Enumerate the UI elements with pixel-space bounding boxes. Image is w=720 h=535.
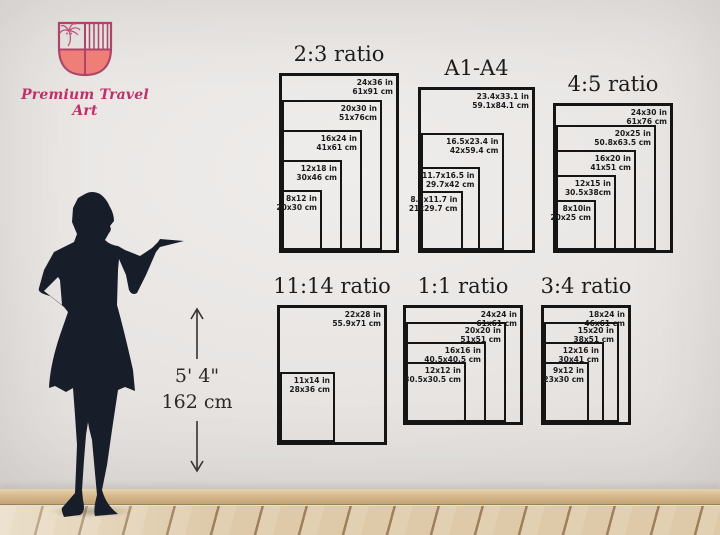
size-label: 12x18 in30x46 cm <box>296 164 337 182</box>
chart-title: 3:4 ratio <box>541 274 632 298</box>
size-chart-11-14: 11:14 ratio22x28 in55.9x71 cm11x14 in28x… <box>277 305 387 445</box>
size-chart-2-3: 2:3 ratio24x36 in61x91 cm20x30 in51x76cm… <box>279 73 399 253</box>
chart-title: 4:5 ratio <box>568 72 659 96</box>
size-in: 16x16 in <box>424 346 481 355</box>
size-in: 11x14 in <box>289 376 330 385</box>
size-in: 12x15 in <box>565 179 611 188</box>
size-cm: 42x59.4 cm <box>446 146 498 155</box>
size-in: 12x18 in <box>296 164 337 173</box>
size-cm: 30.5x30.5 cm <box>404 375 461 384</box>
size-label: 24x30 in61x76 cm <box>626 108 667 126</box>
size-in: 9x12 in <box>543 366 584 375</box>
size-chart-4-5: 4:5 ratio24x30 in61x76 cm20x25 in50.8x63… <box>553 103 673 253</box>
size-in: 22x28 in <box>332 310 381 319</box>
size-guide-poster: Premium Travel Art 5' 4" 162 cm 2:3 rati… <box>0 0 720 535</box>
size-label: 12x15 in30.5x38cm <box>565 179 611 197</box>
height-imperial: 5' 4" <box>158 365 236 387</box>
arrow-up-icon <box>190 307 204 359</box>
size-chart-1-1: 1:1 ratio24x24 in61x61 cm20x20 in51x51 c… <box>403 305 523 425</box>
size-cm: 59.1x84.1 cm <box>472 101 529 110</box>
chart-title: 11:14 ratio <box>273 274 391 298</box>
size-cm: 29.7x42 cm <box>422 180 474 189</box>
height-marker: 5' 4" 162 cm <box>158 305 236 475</box>
size-cm: 55.9x71 cm <box>332 319 381 328</box>
size-in: 16x24 in <box>316 134 357 143</box>
size-label: 24x36 in61x91 cm <box>352 78 393 96</box>
size-cm: 30.5x38cm <box>565 188 611 197</box>
chart-title: 1:1 ratio <box>418 274 509 298</box>
brand-logo: Premium Travel Art <box>10 20 160 119</box>
size-label: 20x30 in51x76cm <box>339 104 377 122</box>
size-in: 20x30 in <box>339 104 377 113</box>
size-cm: 20x30 cm <box>276 203 317 212</box>
size-label: 16x20 in41x51 cm <box>590 154 631 172</box>
brand-name: Premium Travel Art <box>10 87 160 119</box>
size-in: 16x20 in <box>590 154 631 163</box>
size-cm: 51x76cm <box>339 113 377 122</box>
size-in: 11.7x16.5 in <box>422 171 474 180</box>
size-label: 20x25 in50.8x63.5 cm <box>594 129 651 147</box>
size-label: 8x10in20x25 cm <box>550 204 591 222</box>
size-label: 9x12 in23x30 cm <box>543 366 584 384</box>
size-label: 8.3x11.7 in21x29.7 cm <box>409 195 458 213</box>
size-cm: 61x91 cm <box>352 87 393 96</box>
height-metric: 162 cm <box>158 391 236 413</box>
size-label: 22x28 in55.9x71 cm <box>332 310 381 328</box>
size-in: 12x12 in <box>404 366 461 375</box>
size-cm: 30x46 cm <box>296 173 337 182</box>
shield-icon <box>56 20 114 78</box>
size-cm: 20x25 cm <box>550 213 591 222</box>
size-in: 24x30 in <box>626 108 667 117</box>
size-in: 8.3x11.7 in <box>409 195 458 204</box>
size-chart-a1-a4: A1-A423.4x33.1 in59.1x84.1 cm16.5x23.4 i… <box>418 87 535 253</box>
size-in: 18x24 in <box>584 310 625 319</box>
print-size-rect: 12x12 in30.5x30.5 cm <box>406 362 466 422</box>
size-label: 23.4x33.1 in59.1x84.1 cm <box>472 92 529 110</box>
chart-title: A1-A4 <box>444 56 508 80</box>
size-label: 8x12 in20x30 cm <box>276 194 317 212</box>
size-in: 8x10in <box>550 204 591 213</box>
print-size-rect: 8.3x11.7 in21x29.7 cm <box>421 191 463 250</box>
size-cm: 50.8x63.5 cm <box>594 138 651 147</box>
print-size-rect: 9x12 in23x30 cm <box>544 362 589 422</box>
size-label: 16x24 in41x61 cm <box>316 134 357 152</box>
size-cm: 28x36 cm <box>289 385 330 394</box>
palm-tree-icon <box>60 24 80 46</box>
size-in: 20x25 in <box>594 129 651 138</box>
size-label: 11.7x16.5 in29.7x42 cm <box>422 171 474 189</box>
size-in: 23.4x33.1 in <box>472 92 529 101</box>
size-cm: 21x29.7 cm <box>409 204 458 213</box>
size-label: 16.5x23.4 in42x59.4 cm <box>446 137 498 155</box>
print-size-rect: 8x10in20x25 cm <box>556 200 596 250</box>
size-label: 12x12 in30.5x30.5 cm <box>404 366 461 384</box>
size-in: 24x24 in <box>476 310 517 319</box>
size-in: 15x20 in <box>573 326 614 335</box>
print-size-rect: 11x14 in28x36 cm <box>280 372 335 442</box>
shield-stripes <box>90 23 108 49</box>
chart-title: 2:3 ratio <box>294 42 385 66</box>
size-in: 16.5x23.4 in <box>446 137 498 146</box>
size-chart-3-4: 3:4 ratio18x24 in46x61 cm15x20 in38x51 c… <box>541 305 631 425</box>
size-in: 24x36 in <box>352 78 393 87</box>
size-in: 20x20 in <box>460 326 501 335</box>
size-cm: 41x51 cm <box>590 163 631 172</box>
size-label: 11x14 in28x36 cm <box>289 376 330 394</box>
size-in: 12x16 in <box>558 346 599 355</box>
size-in: 8x12 in <box>276 194 317 203</box>
arrow-down-icon <box>190 421 204 473</box>
size-cm: 41x61 cm <box>316 143 357 152</box>
print-size-rect: 8x12 in20x30 cm <box>282 190 322 250</box>
size-cm: 23x30 cm <box>543 375 584 384</box>
